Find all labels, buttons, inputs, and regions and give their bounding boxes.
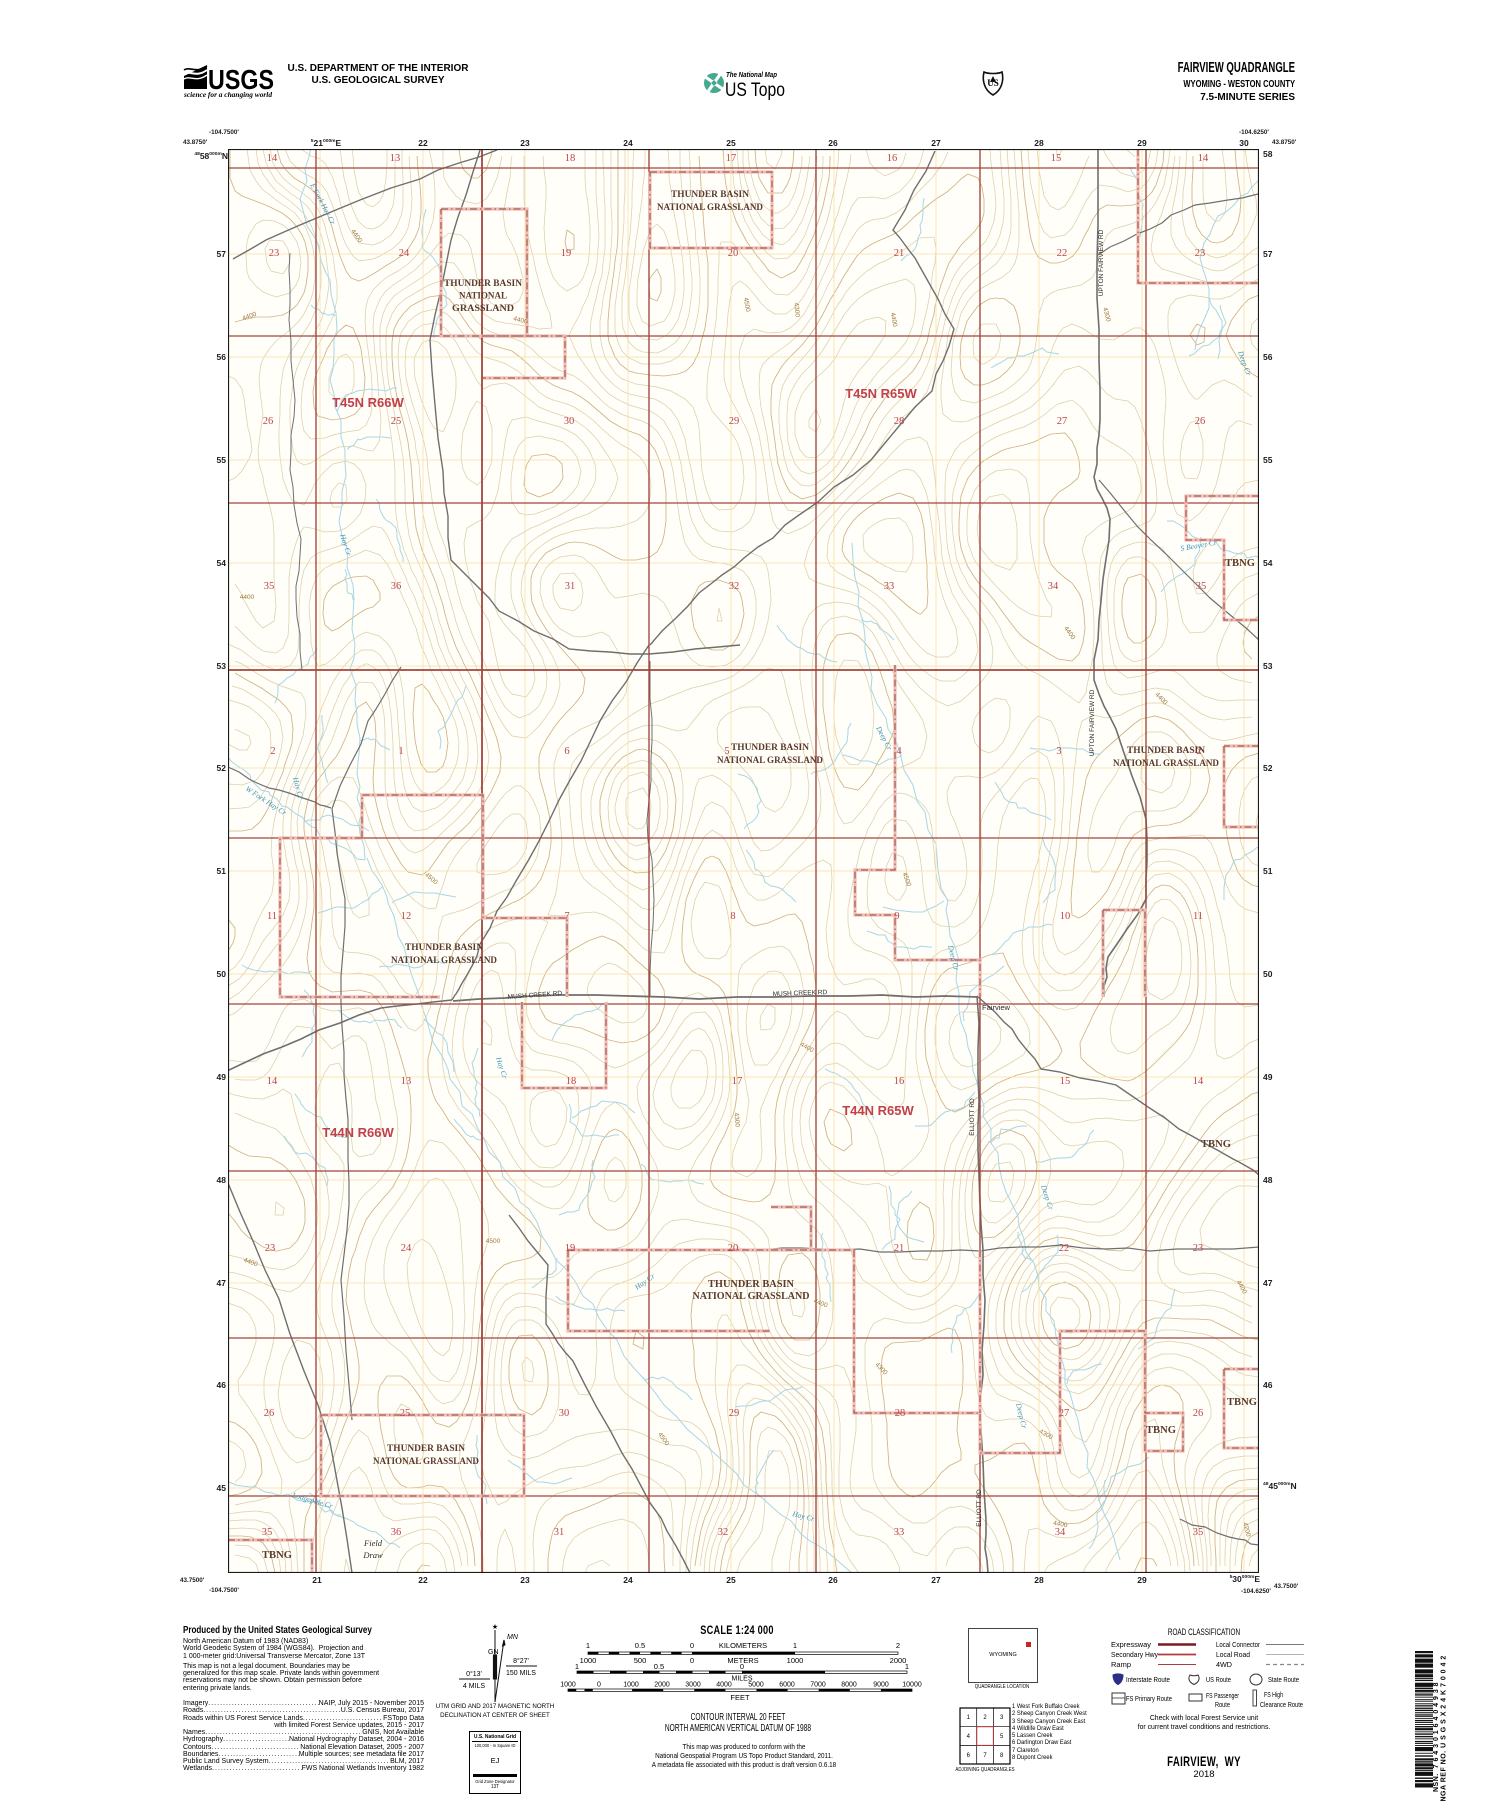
svg-text:State Route: State Route — [1268, 1675, 1299, 1684]
svg-text:19: 19 — [565, 1243, 576, 1254]
svg-text:NATIONAL GRASSLAND: NATIONAL GRASSLAND — [391, 956, 497, 966]
svg-text:25: 25 — [400, 1408, 411, 1419]
svg-text:17: 17 — [726, 153, 737, 164]
svg-text:TBNG: TBNG — [1201, 1139, 1231, 1150]
svg-text:Interstate Route: Interstate Route — [1126, 1675, 1170, 1684]
svg-text:8000: 8000 — [841, 1682, 857, 1689]
svg-text:14: 14 — [267, 1076, 278, 1087]
svg-text:8: 8 — [730, 911, 735, 922]
svg-text:ELLIOTT RD: ELLIOTT RD — [976, 1489, 983, 1527]
svg-text:0: 0 — [690, 1641, 694, 1650]
svg-text:7: 7 — [983, 1753, 987, 1759]
svg-text:26: 26 — [1195, 416, 1206, 427]
svg-text:Field: Field — [363, 1538, 383, 1548]
svg-text:FS Passenger: FS Passenger — [1206, 1691, 1239, 1700]
svg-text:0.5: 0.5 — [654, 1662, 664, 1671]
svg-text:THUNDER BASIN: THUNDER BASIN — [1127, 746, 1205, 756]
svg-text:US Route: US Route — [1206, 1675, 1231, 1684]
svg-text:KILOMETERS: KILOMETERS — [719, 1641, 767, 1650]
svg-text:35: 35 — [264, 581, 275, 592]
svg-text:0: 0 — [740, 1662, 744, 1671]
svg-text:MN: MN — [507, 1634, 519, 1641]
svg-text:NATIONAL: NATIONAL — [459, 292, 507, 302]
svg-text:1: 1 — [793, 1641, 797, 1650]
svg-text:4 MILS: 4 MILS — [463, 1683, 486, 1690]
svg-text:T44N R65W: T44N R65W — [842, 1103, 914, 1118]
svg-text:THUNDER BASIN: THUNDER BASIN — [405, 943, 483, 953]
svg-text:27: 27 — [1059, 1408, 1070, 1419]
svg-text:23: 23 — [1195, 248, 1206, 259]
svg-text:FEET: FEET — [730, 1693, 750, 1702]
svg-text:T45N R65W: T45N R65W — [845, 386, 917, 401]
svg-text:THUNDER BASIN: THUNDER BASIN — [708, 1279, 794, 1290]
svg-text:1: 1 — [575, 1662, 579, 1671]
svg-text:2: 2 — [896, 1641, 900, 1650]
svg-text:★: ★ — [492, 1623, 498, 1631]
svg-text:32: 32 — [729, 581, 740, 592]
svg-text:25: 25 — [391, 416, 402, 427]
svg-text:Draw: Draw — [362, 1550, 383, 1560]
svg-text:Route: Route — [1215, 1700, 1230, 1709]
svg-text:16: 16 — [887, 153, 898, 164]
svg-text:14: 14 — [267, 153, 278, 164]
svg-text:10000: 10000 — [902, 1682, 922, 1689]
svg-text:28: 28 — [894, 416, 905, 427]
svg-text:NATIONAL GRASSLAND: NATIONAL GRASSLAND — [373, 1457, 479, 1467]
svg-text:36: 36 — [391, 1527, 402, 1538]
svg-text:4000: 4000 — [716, 1682, 732, 1689]
svg-text:2000: 2000 — [654, 1682, 670, 1689]
svg-text:4500: 4500 — [486, 1238, 501, 1245]
svg-text:0.5: 0.5 — [635, 1641, 645, 1650]
svg-text:TBNG: TBNG — [262, 1550, 292, 1561]
svg-text:4400: 4400 — [240, 594, 255, 601]
svg-text:Local Connector: Local Connector — [1216, 1640, 1260, 1649]
svg-text:4: 4 — [967, 1734, 971, 1740]
svg-text:Secondary Hwy: Secondary Hwy — [1111, 1650, 1158, 1659]
svg-text:THUNDER BASIN: THUNDER BASIN — [444, 279, 522, 289]
svg-text:26: 26 — [263, 416, 274, 427]
svg-text:24: 24 — [399, 248, 410, 259]
svg-text:31: 31 — [565, 581, 576, 592]
svg-text:1: 1 — [586, 1641, 590, 1650]
svg-text:23: 23 — [269, 248, 280, 259]
svg-text:21: 21 — [894, 248, 905, 259]
svg-text:2: 2 — [270, 746, 275, 757]
svg-text:32: 32 — [718, 1527, 729, 1538]
svg-text:14: 14 — [1198, 153, 1209, 164]
svg-text:35: 35 — [1193, 1527, 1204, 1538]
svg-text:2000: 2000 — [890, 1656, 907, 1665]
svg-text:9: 9 — [894, 911, 899, 922]
svg-text:150 MILS: 150 MILS — [506, 1670, 536, 1677]
svg-text:35: 35 — [262, 1527, 273, 1538]
svg-text:1000: 1000 — [580, 1656, 597, 1665]
svg-text:TBNG: TBNG — [1227, 1397, 1257, 1408]
svg-text:8: 8 — [1000, 1753, 1004, 1759]
svg-text:1: 1 — [398, 746, 403, 757]
svg-text:13: 13 — [401, 1076, 412, 1087]
svg-text:23: 23 — [1193, 1243, 1204, 1254]
svg-text:11: 11 — [1193, 911, 1203, 922]
svg-text:Ramp: Ramp — [1111, 1660, 1131, 1669]
svg-text:TBNG: TBNG — [1146, 1425, 1176, 1436]
svg-text:GRASSLAND: GRASSLAND — [452, 304, 514, 314]
svg-text:18: 18 — [565, 153, 576, 164]
svg-text:NATIONAL GRASSLAND: NATIONAL GRASSLAND — [1113, 759, 1219, 769]
svg-text:ELLIOTT RD: ELLIOTT RD — [969, 1098, 976, 1136]
svg-text:23: 23 — [265, 1243, 276, 1254]
svg-text:4: 4 — [896, 746, 902, 757]
svg-text:GN: GN — [488, 1649, 499, 1656]
svg-text:36: 36 — [391, 581, 402, 592]
svg-text:34: 34 — [1048, 581, 1059, 592]
svg-text:6000: 6000 — [779, 1682, 795, 1689]
svg-text:9000: 9000 — [873, 1682, 889, 1689]
svg-text:US Topo: US Topo — [725, 80, 785, 101]
svg-text:18: 18 — [566, 1076, 577, 1087]
svg-text:30: 30 — [559, 1408, 570, 1419]
svg-text:T45N R66W: T45N R66W — [332, 395, 404, 410]
svg-text:20: 20 — [728, 248, 739, 259]
svg-text:28: 28 — [895, 1408, 906, 1419]
svg-text:THUNDER BASIN: THUNDER BASIN — [671, 190, 749, 200]
svg-text:4300: 4300 — [792, 302, 800, 317]
svg-text:The National Map: The National Map — [726, 70, 778, 79]
svg-text:3: 3 — [1056, 746, 1061, 757]
svg-text:17: 17 — [732, 1076, 743, 1087]
svg-text:29: 29 — [729, 416, 740, 427]
svg-text:6: 6 — [967, 1753, 971, 1759]
svg-text:14: 14 — [1193, 1076, 1204, 1087]
svg-text:24: 24 — [401, 1243, 412, 1254]
svg-text:1000: 1000 — [787, 1656, 804, 1665]
svg-text:21: 21 — [894, 1243, 905, 1254]
svg-text:Clearance Route: Clearance Route — [1260, 1700, 1303, 1709]
svg-text:science for a changing world: science for a changing world — [183, 90, 272, 99]
svg-text:THUNDER BASIN: THUNDER BASIN — [731, 743, 809, 753]
svg-text:500: 500 — [634, 1656, 647, 1665]
svg-text:6: 6 — [564, 746, 569, 757]
svg-text:NATIONAL GRASSLAND: NATIONAL GRASSLAND — [717, 756, 823, 766]
svg-text:5: 5 — [1000, 1734, 1004, 1740]
svg-text:0: 0 — [690, 1656, 694, 1665]
svg-text:10: 10 — [1060, 911, 1071, 922]
svg-text:12: 12 — [401, 911, 412, 922]
svg-text:Local Road: Local Road — [1216, 1650, 1250, 1659]
svg-text:Expressway: Expressway — [1111, 1640, 1151, 1649]
svg-text:FS High: FS High — [1264, 1690, 1283, 1699]
svg-text:1000: 1000 — [623, 1682, 639, 1689]
svg-text:1000: 1000 — [560, 1682, 576, 1689]
svg-text:3: 3 — [1000, 1715, 1004, 1721]
svg-text:TBNG: TBNG — [1225, 558, 1255, 569]
svg-text:20: 20 — [728, 1243, 739, 1254]
svg-text:26: 26 — [264, 1408, 275, 1419]
svg-text:19: 19 — [561, 248, 572, 259]
svg-text:8°27': 8°27' — [513, 1657, 529, 1665]
svg-text:THUNDER BASIN: THUNDER BASIN — [387, 1444, 465, 1454]
svg-text:0°13': 0°13' — [466, 1670, 482, 1678]
svg-text:Fairview: Fairview — [982, 1003, 1011, 1012]
svg-text:1: 1 — [905, 1662, 909, 1671]
svg-text:0: 0 — [597, 1682, 601, 1689]
svg-text:26: 26 — [1193, 1408, 1204, 1419]
svg-text:1: 1 — [967, 1715, 971, 1721]
svg-text:4300: 4300 — [732, 1112, 740, 1127]
svg-text:22: 22 — [1057, 248, 1068, 259]
svg-text:NATIONAL GRASSLAND: NATIONAL GRASSLAND — [693, 1291, 810, 1302]
svg-text:5000: 5000 — [748, 1682, 764, 1689]
svg-text:33: 33 — [894, 1527, 905, 1538]
svg-text:NATIONAL GRASSLAND: NATIONAL GRASSLAND — [657, 203, 763, 213]
svg-text:15: 15 — [1051, 153, 1062, 164]
svg-text:4WD: 4WD — [1216, 1660, 1233, 1669]
svg-text:13: 13 — [390, 153, 401, 164]
svg-text:27: 27 — [1057, 416, 1068, 427]
svg-text:3000: 3000 — [685, 1682, 701, 1689]
svg-text:11: 11 — [267, 911, 277, 922]
svg-text:7000: 7000 — [810, 1682, 826, 1689]
svg-text:UPTON FAIRVIEW RD: UPTON FAIRVIEW RD — [1089, 689, 1096, 756]
svg-text:33: 33 — [884, 581, 895, 592]
svg-text:29: 29 — [729, 1408, 740, 1419]
svg-text:7: 7 — [564, 911, 569, 922]
svg-text:35: 35 — [1196, 581, 1207, 592]
svg-text:2: 2 — [983, 1715, 987, 1721]
svg-text:FS Primary Route: FS Primary Route — [1126, 1694, 1172, 1703]
svg-text:30: 30 — [564, 416, 575, 427]
svg-text:UPTON FAIRVIEW RD: UPTON FAIRVIEW RD — [1098, 229, 1105, 296]
svg-text:31: 31 — [554, 1527, 565, 1538]
svg-text:22: 22 — [1059, 1243, 1070, 1254]
svg-text:15: 15 — [1060, 1076, 1071, 1087]
svg-text:16: 16 — [894, 1076, 905, 1087]
svg-text:T44N R66W: T44N R66W — [322, 1125, 394, 1140]
